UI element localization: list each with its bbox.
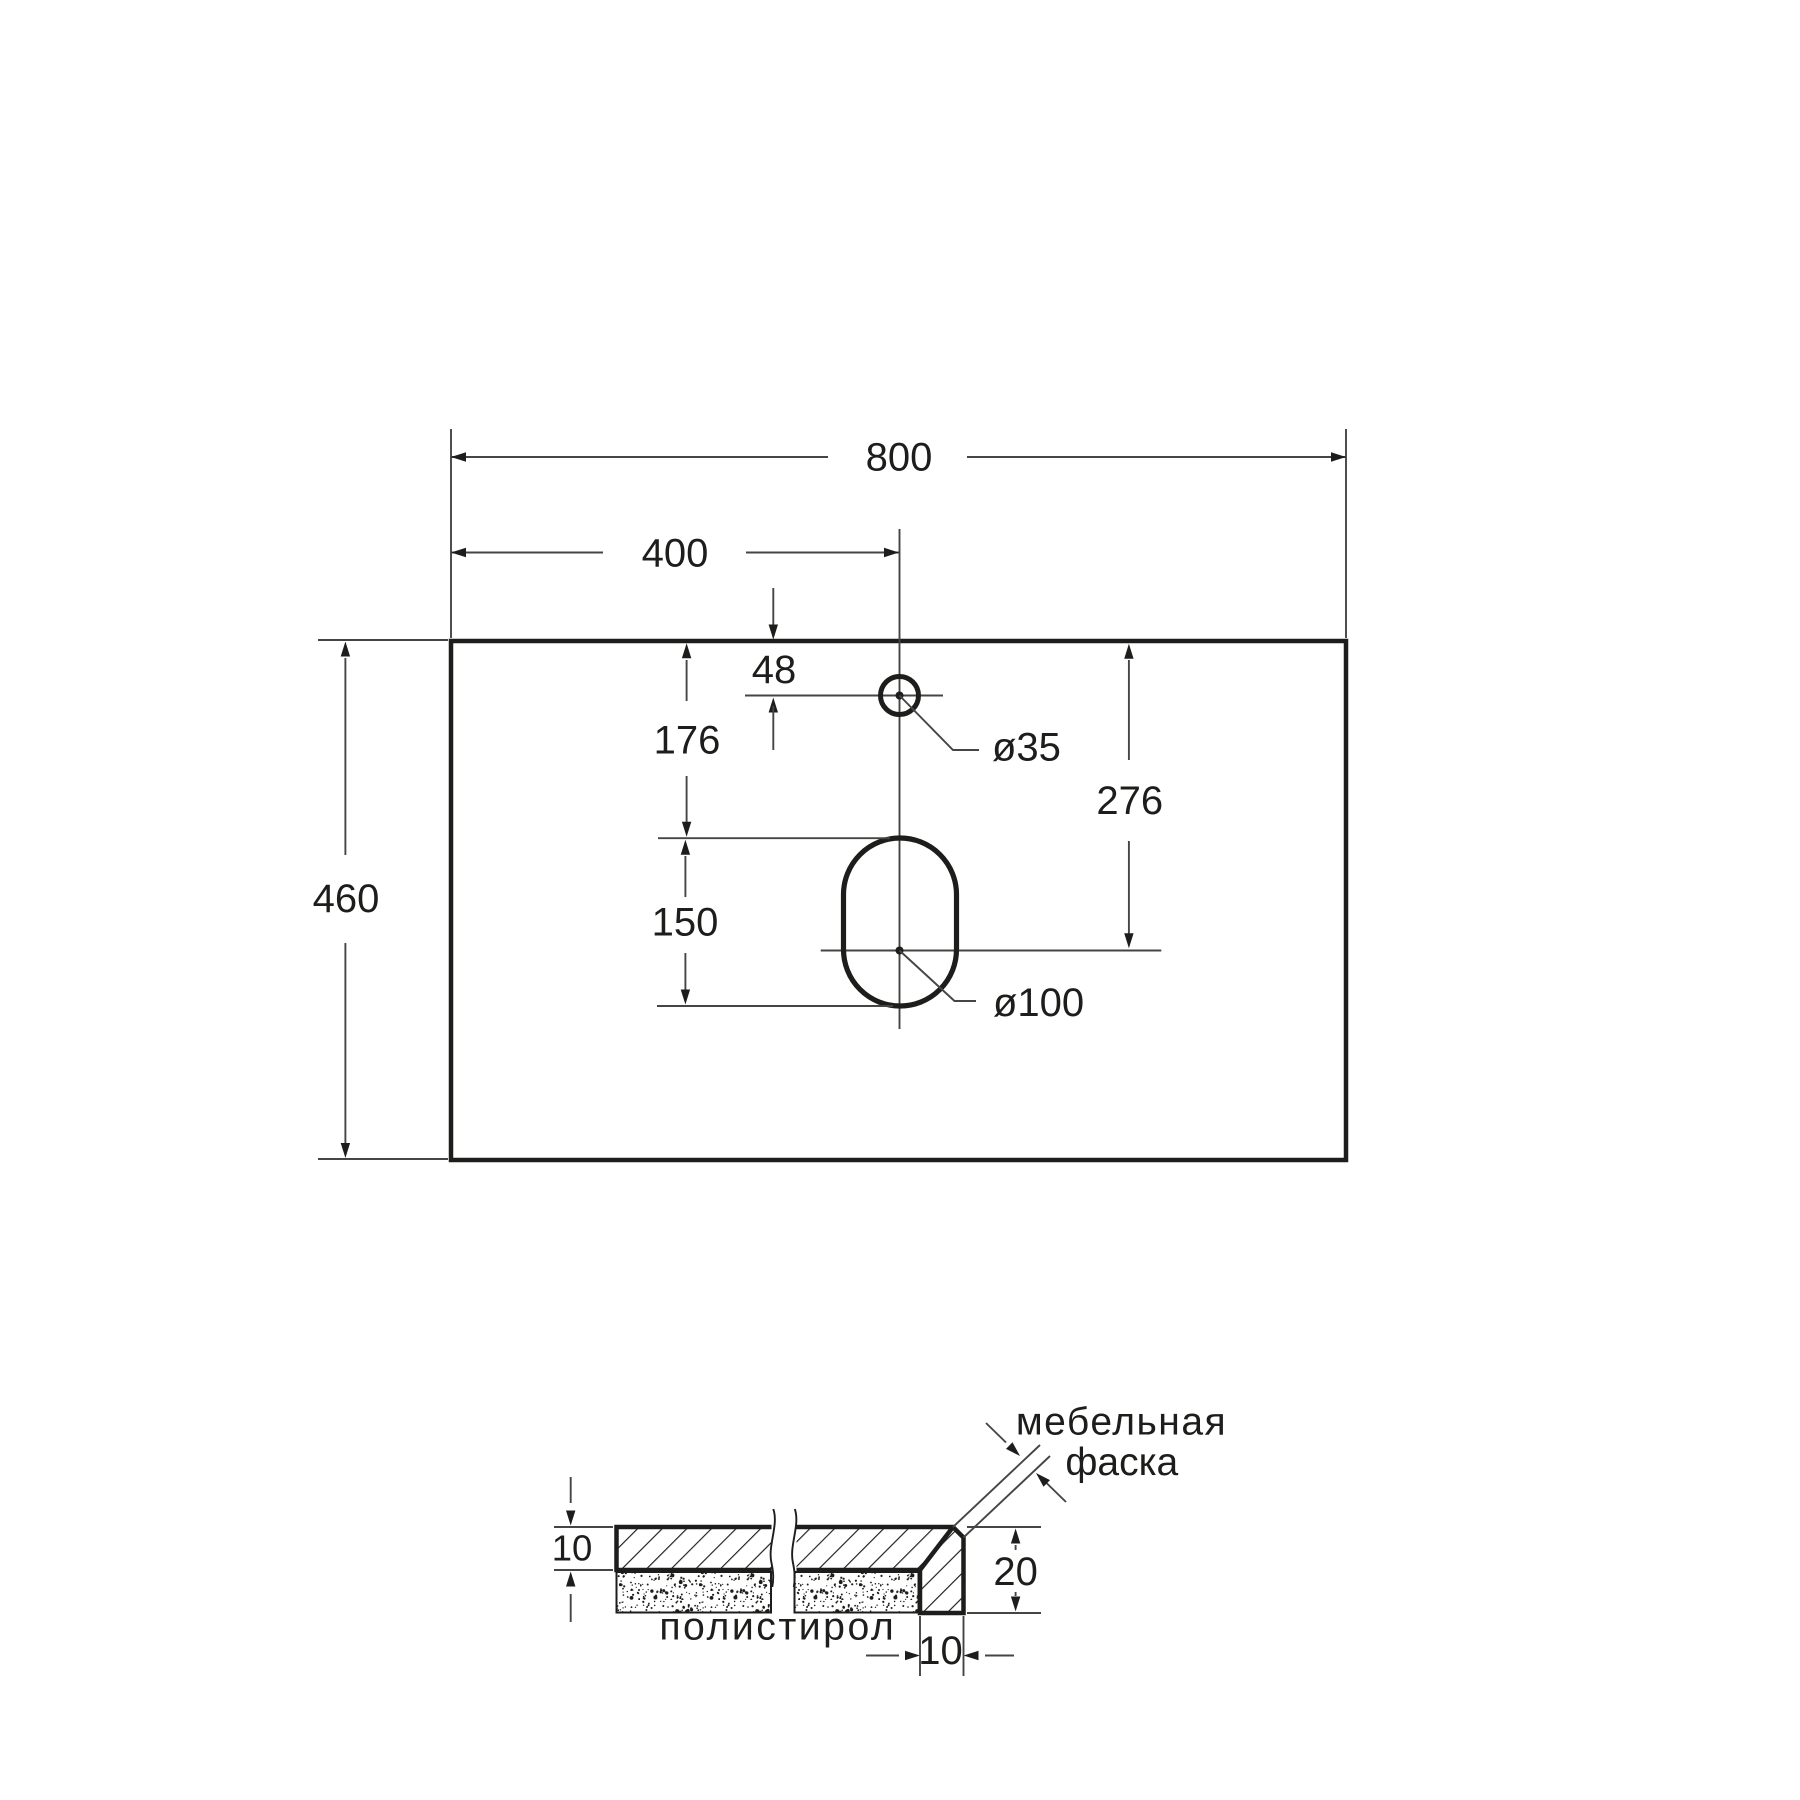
svg-text:800: 800	[866, 436, 933, 480]
svg-text:10: 10	[552, 1528, 593, 1569]
svg-text:400: 400	[642, 532, 709, 576]
svg-text:48: 48	[752, 648, 797, 692]
svg-text:полистирол: полистирол	[659, 1606, 896, 1649]
svg-text:276: 276	[1096, 779, 1163, 823]
svg-text:ø35: ø35	[992, 726, 1061, 770]
svg-text:460: 460	[313, 877, 380, 921]
svg-text:фаска: фаска	[1065, 1441, 1178, 1484]
svg-text:176: 176	[654, 719, 721, 763]
svg-text:150: 150	[652, 901, 719, 945]
svg-text:мебельная: мебельная	[1016, 1401, 1227, 1444]
svg-text:10: 10	[918, 1629, 963, 1673]
svg-text:ø100: ø100	[993, 981, 1084, 1025]
svg-text:20: 20	[993, 1550, 1038, 1594]
